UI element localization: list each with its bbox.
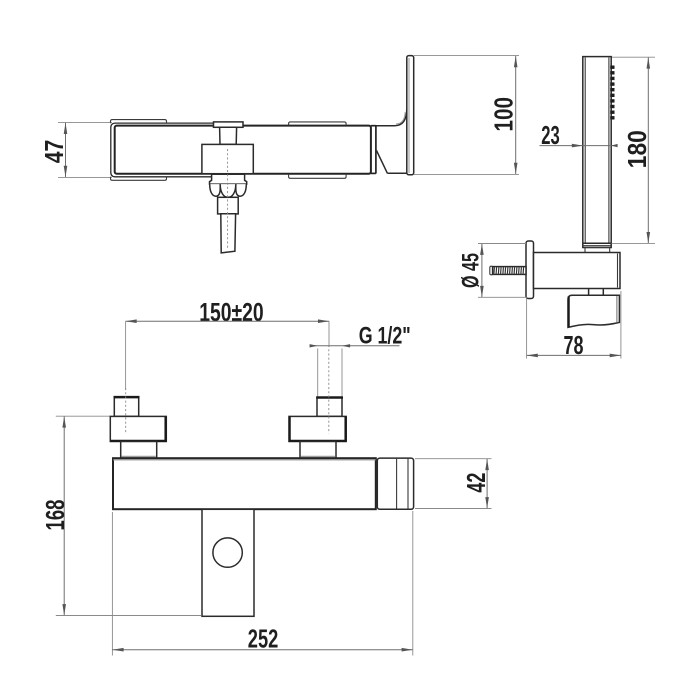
svg-text:G 1/2": G 1/2" — [359, 322, 411, 349]
svg-text:180: 180 — [622, 130, 652, 168]
svg-text:100: 100 — [488, 97, 518, 132]
svg-text:150±20: 150±20 — [199, 297, 264, 327]
svg-text:252: 252 — [248, 624, 278, 654]
svg-text:168: 168 — [40, 500, 70, 531]
svg-text:Ø 45: Ø 45 — [458, 253, 485, 288]
svg-text:42: 42 — [461, 473, 491, 493]
svg-text:78: 78 — [564, 330, 584, 360]
svg-text:47: 47 — [39, 140, 69, 164]
